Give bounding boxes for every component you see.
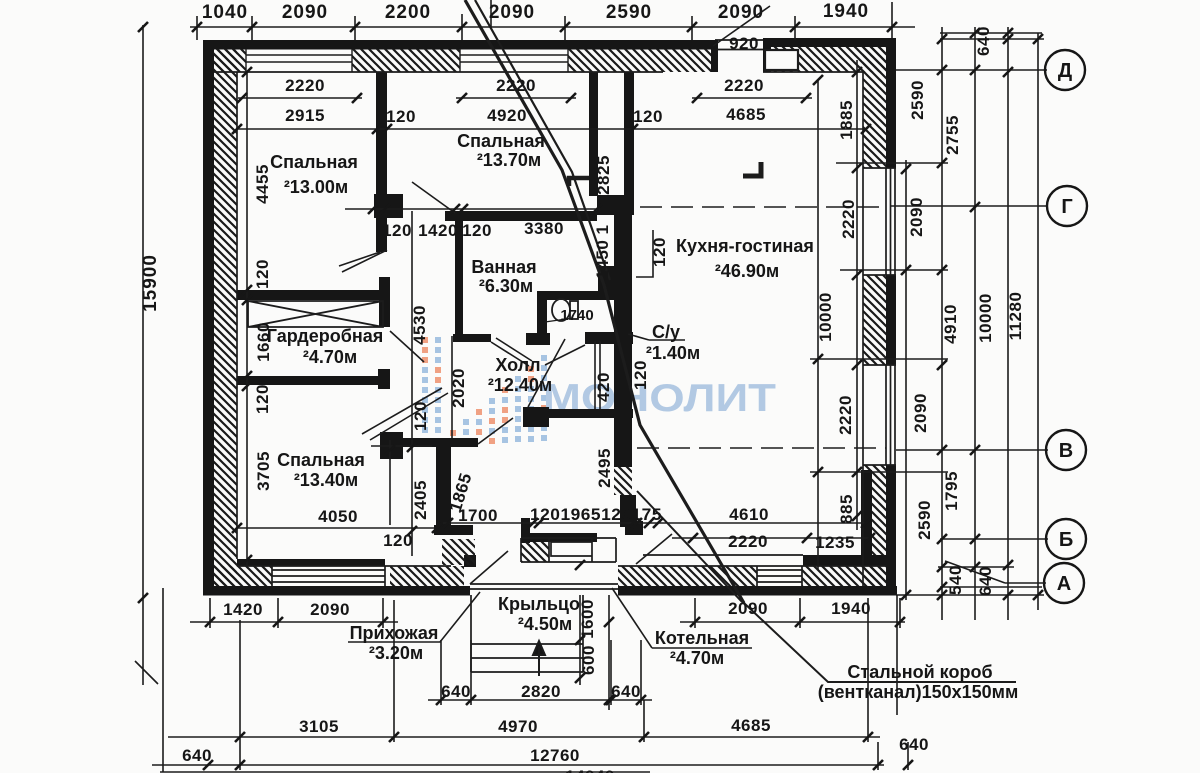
svg-text:2090: 2090 <box>489 2 535 23</box>
svg-text:2220: 2220 <box>836 395 855 435</box>
svg-text:2090: 2090 <box>310 600 350 619</box>
svg-text:15900: 15900 <box>140 254 161 312</box>
svg-text:12760: 12760 <box>530 746 580 765</box>
svg-text:Спальная: Спальная <box>277 450 365 470</box>
svg-text:640: 640 <box>611 682 641 701</box>
svg-text:2220: 2220 <box>285 76 325 95</box>
svg-text:1660: 1660 <box>254 322 273 362</box>
svg-text:4050: 4050 <box>318 507 358 526</box>
svg-text:2200: 2200 <box>385 2 431 23</box>
svg-text:11280: 11280 <box>1006 292 1025 341</box>
svg-text:Д: Д <box>1058 60 1072 82</box>
svg-text:10000: 10000 <box>976 293 995 343</box>
svg-text:4685: 4685 <box>731 716 771 735</box>
svg-text:120: 120 <box>411 401 430 431</box>
svg-text:2090: 2090 <box>282 2 328 23</box>
svg-text:120: 120 <box>633 107 663 126</box>
svg-text:2090: 2090 <box>728 599 768 618</box>
svg-text:4685: 4685 <box>726 105 766 124</box>
svg-text:А: А <box>1057 573 1071 595</box>
svg-text:Ванная: Ванная <box>471 257 536 277</box>
svg-text:1040: 1040 <box>202 2 248 23</box>
svg-text:Холл: Холл <box>495 355 540 375</box>
svg-text:С/у: С/у <box>652 322 680 342</box>
svg-text:640: 640 <box>974 26 993 56</box>
svg-text:2825: 2825 <box>594 155 613 195</box>
svg-text:1940: 1940 <box>823 1 869 22</box>
svg-text:120: 120 <box>253 259 272 289</box>
svg-text:640: 640 <box>899 735 929 754</box>
svg-text:2220: 2220 <box>496 76 536 95</box>
svg-text:2220: 2220 <box>728 532 768 551</box>
svg-text:14040: 14040 <box>565 767 615 773</box>
svg-text:²3.20м: ²3.20м <box>369 643 423 663</box>
svg-text:Б: Б <box>1059 529 1073 551</box>
svg-text:120: 120 <box>631 360 650 390</box>
svg-text:²4.50м: ²4.50м <box>518 614 572 634</box>
svg-text:1600: 1600 <box>578 599 597 639</box>
svg-text:1885: 1885 <box>837 100 856 140</box>
svg-text:4610: 4610 <box>729 505 769 524</box>
svg-text:120: 120 <box>383 531 413 550</box>
svg-text:4455: 4455 <box>253 164 272 204</box>
svg-text:600: 600 <box>579 645 598 675</box>
svg-text:2020: 2020 <box>449 368 468 408</box>
svg-text:Крыльцо: Крыльцо <box>498 594 580 614</box>
svg-text:1450 1: 1450 1 <box>593 225 612 280</box>
svg-text:10000: 10000 <box>816 292 835 342</box>
svg-text:Котельная: Котельная <box>655 628 749 648</box>
svg-text:920: 920 <box>729 34 759 53</box>
svg-text:Г: Г <box>1061 196 1072 218</box>
svg-text:Прихожая: Прихожая <box>350 623 439 643</box>
svg-text:²13.40м: ²13.40м <box>294 470 358 490</box>
svg-text:3705: 3705 <box>254 451 273 491</box>
svg-text:120: 120 <box>650 237 669 267</box>
svg-text:Стальной короб: Стальной короб <box>847 662 992 682</box>
svg-text:3380: 3380 <box>524 219 564 238</box>
svg-text:640: 640 <box>441 682 471 701</box>
svg-text:2220: 2220 <box>724 76 764 95</box>
svg-text:Гардеробная: Гардеробная <box>267 326 383 346</box>
svg-text:²12.40м: ²12.40м <box>488 375 552 395</box>
svg-text:2090: 2090 <box>907 197 926 237</box>
svg-text:Спальная: Спальная <box>457 131 545 151</box>
svg-text:885: 885 <box>837 494 856 524</box>
svg-text:1940: 1940 <box>831 599 871 618</box>
svg-text:²1.40м: ²1.40м <box>646 343 700 363</box>
svg-text:²6.30м: ²6.30м <box>479 276 533 296</box>
svg-text:²4.70м: ²4.70м <box>303 347 357 367</box>
svg-text:640: 640 <box>976 566 995 596</box>
svg-text:4910: 4910 <box>941 304 960 344</box>
svg-text:120: 120 <box>386 107 416 126</box>
svg-text:1795: 1795 <box>942 471 961 511</box>
svg-text:2590: 2590 <box>606 2 652 23</box>
svg-text:2820: 2820 <box>521 682 561 701</box>
svg-text:120: 120 <box>253 384 272 414</box>
svg-text:Спальная: Спальная <box>270 152 358 172</box>
svg-text:2915: 2915 <box>285 106 325 125</box>
svg-text:(вентканал)150х150мм: (вентканал)150х150мм <box>818 682 1019 702</box>
svg-text:Кухня-гостиная: Кухня-гостиная <box>676 236 814 256</box>
svg-text:3105: 3105 <box>299 717 339 736</box>
svg-text:1420: 1420 <box>418 221 458 240</box>
svg-text:В: В <box>1059 440 1073 462</box>
svg-text:²46.90м: ²46.90м <box>715 261 779 281</box>
svg-text:1740: 1740 <box>560 307 593 324</box>
svg-text:4530: 4530 <box>410 305 429 345</box>
svg-text:1420: 1420 <box>223 600 263 619</box>
svg-text:1235: 1235 <box>815 533 855 552</box>
svg-text:2590: 2590 <box>915 500 934 540</box>
svg-text:4970: 4970 <box>498 717 538 736</box>
svg-text:120: 120 <box>382 221 412 240</box>
svg-text:²13.00м: ²13.00м <box>284 177 348 197</box>
svg-text:640: 640 <box>182 746 212 765</box>
svg-text:²13.70м: ²13.70м <box>477 150 541 170</box>
svg-text:2405: 2405 <box>411 480 430 520</box>
svg-text:420: 420 <box>594 372 613 402</box>
svg-text:²4.70м: ²4.70м <box>670 648 724 668</box>
svg-text:2090: 2090 <box>718 2 764 23</box>
svg-text:120: 120 <box>462 221 492 240</box>
svg-text:2090: 2090 <box>911 393 930 433</box>
svg-text:2755: 2755 <box>943 115 962 155</box>
svg-text:4920: 4920 <box>487 106 527 125</box>
svg-text:1201965120175: 1201965120175 <box>530 505 662 524</box>
svg-text:2220: 2220 <box>839 199 858 239</box>
svg-text:2495: 2495 <box>595 448 614 488</box>
svg-text:540: 540 <box>946 565 965 595</box>
svg-text:2590: 2590 <box>908 80 927 120</box>
